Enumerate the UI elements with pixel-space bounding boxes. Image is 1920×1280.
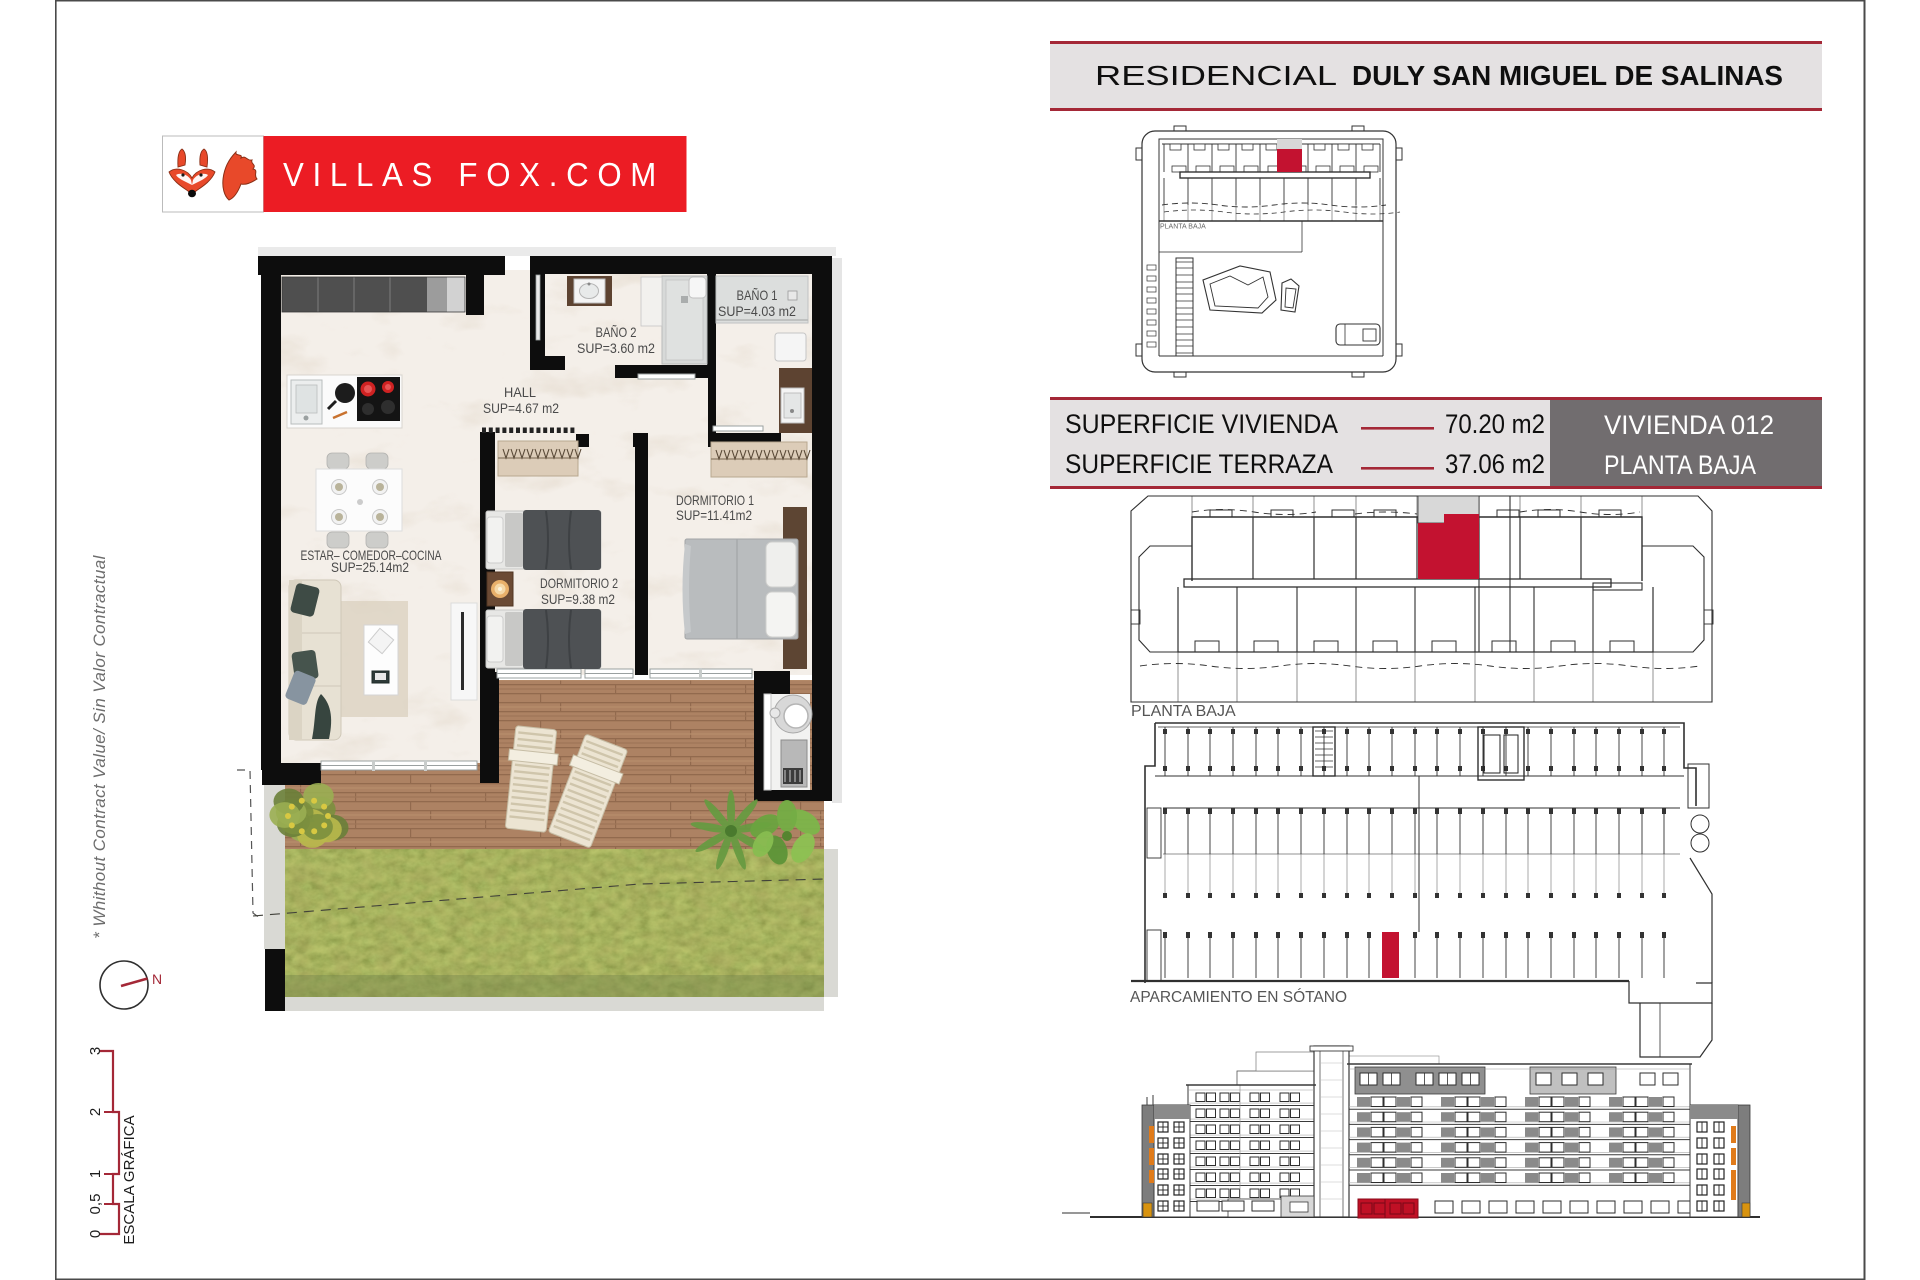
svg-text:SUPERFICIE VIVIENDA: SUPERFICIE VIVIENDA [1065,409,1338,439]
svg-text:ESCALA GRÁFICA: ESCALA GRÁFICA [121,1115,138,1244]
svg-text:SUP=3.60 m2: SUP=3.60 m2 [577,340,655,356]
svg-text:N: N [152,971,162,987]
svg-text:PLANTA BAJA: PLANTA BAJA [1160,224,1206,231]
svg-text:BAÑO 2: BAÑO 2 [596,324,637,340]
svg-text:0,5: 0,5 [87,1194,104,1215]
svg-text:VILLAS FOX.COM: VILLAS FOX.COM [283,156,665,193]
svg-text:PLANTA BAJA: PLANTA BAJA [1131,703,1236,720]
svg-text:RESIDENCIAL: RESIDENCIAL [1095,60,1337,91]
svg-text:* Whithout Contract Value/ Si: * Whithout Contract Value/ Sin Valor Con… [90,554,109,938]
svg-text:SUP=4.67 m2: SUP=4.67 m2 [483,400,559,416]
svg-text:SUP=4.03 m2: SUP=4.03 m2 [718,303,796,319]
svg-text:SUP=9.38 m2: SUP=9.38 m2 [541,591,615,607]
svg-text:DORMITORIO 2: DORMITORIO 2 [540,575,618,591]
svg-text:37.06 m2: 37.06 m2 [1445,449,1545,479]
svg-text:SUP=25.14m2: SUP=25.14m2 [331,559,409,575]
svg-text:DORMITORIO 1: DORMITORIO 1 [676,492,754,508]
svg-text:BAÑO 1: BAÑO 1 [737,287,778,303]
svg-text:PLANTA BAJA: PLANTA BAJA [1604,450,1756,480]
svg-text:HALL: HALL [504,384,536,400]
svg-text:0: 0 [87,1230,104,1238]
svg-text:VIVIENDA 012: VIVIENDA 012 [1604,410,1774,440]
svg-text:SUPERFICIE TERRAZA: SUPERFICIE TERRAZA [1065,449,1333,479]
svg-text:2: 2 [87,1108,104,1116]
svg-text:SUP=11.41m2: SUP=11.41m2 [676,507,752,523]
svg-text:DULY SAN MIGUEL DE SALINAS: DULY SAN MIGUEL DE SALINAS [1352,60,1783,91]
svg-text:1: 1 [87,1170,104,1178]
svg-text:APARCAMIENTO EN SÓTANO: APARCAMIENTO EN SÓTANO [1130,989,1347,1006]
svg-text:3: 3 [87,1047,104,1055]
svg-text:70.20 m2: 70.20 m2 [1445,409,1545,439]
